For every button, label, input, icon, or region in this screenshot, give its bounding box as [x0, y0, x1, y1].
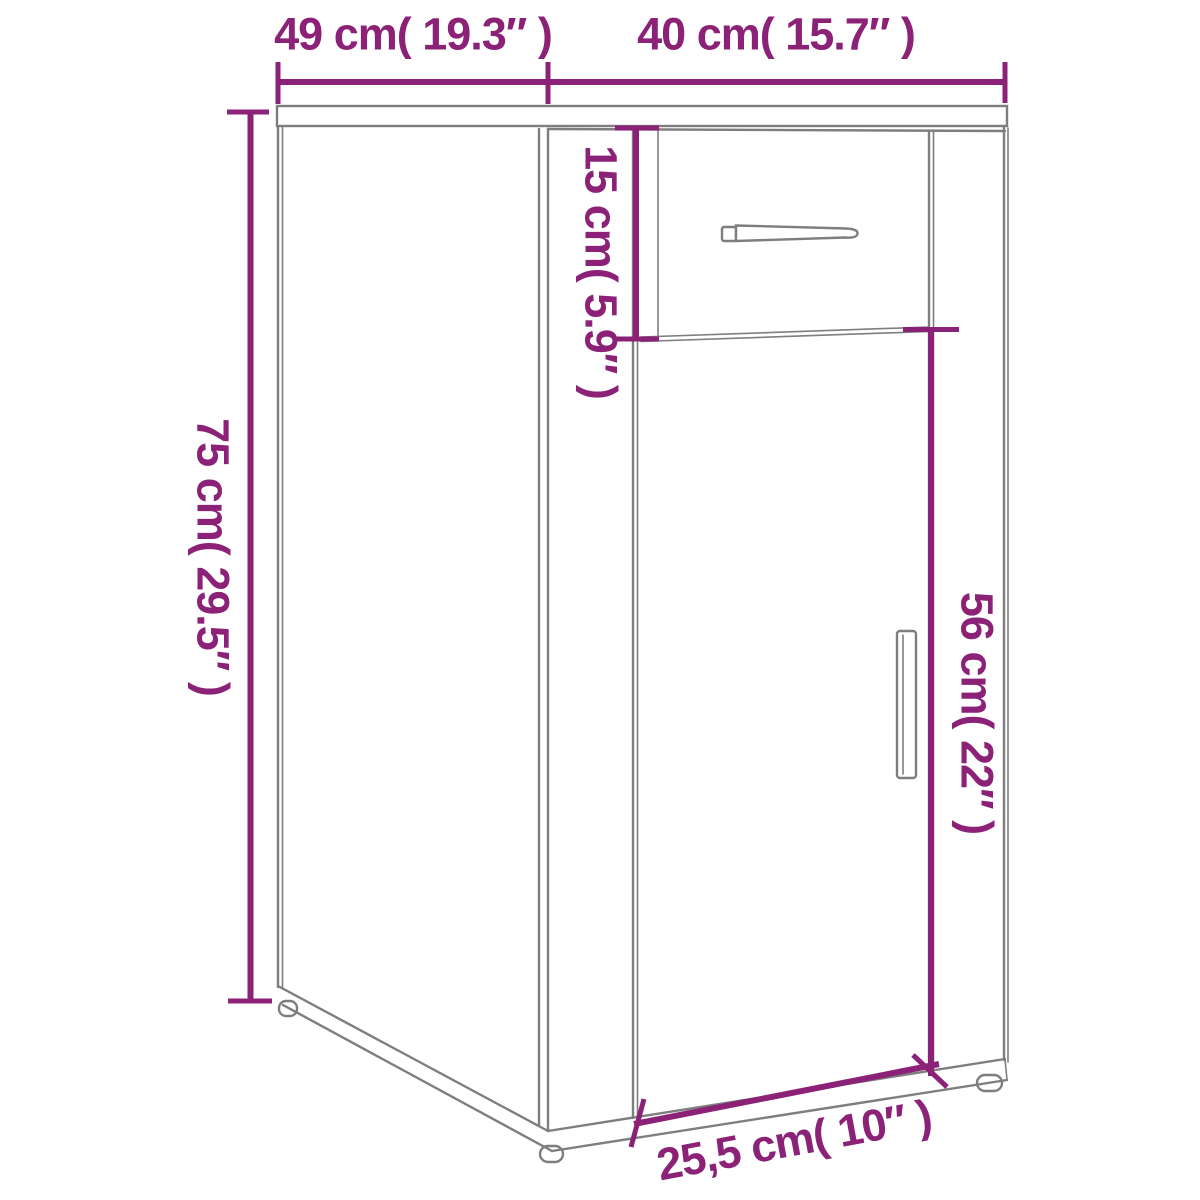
- dimension-label-drawer-height: 15 cm( 5.9″ ): [579, 145, 624, 399]
- dimension-label-width: 40 cm( 15.7″ ): [637, 12, 915, 57]
- cabinet-side-panel: [278, 126, 552, 1151]
- drawer-and-door-edges: [633, 131, 934, 1118]
- dimension-label-height: 75 cm( 29.5″ ): [191, 418, 236, 696]
- cabinet-top-panel: [277, 106, 1007, 126]
- door-handle: [897, 631, 916, 778]
- cabinet-outline: [277, 106, 1008, 1162]
- foot-front-left: [540, 1146, 563, 1162]
- dimension-line-depth-width: [278, 62, 1005, 104]
- dimension-label-door-height: 56 cm( 22″ ): [955, 592, 1000, 834]
- dimension-label-depth: 49 cm( 19.3″ ): [274, 12, 552, 57]
- dimension-diagram: 49 cm( 19.3″ ) 40 cm( 15.7″ ) 75 cm( 29.…: [0, 0, 1200, 1200]
- drawer-handle: [722, 226, 858, 242]
